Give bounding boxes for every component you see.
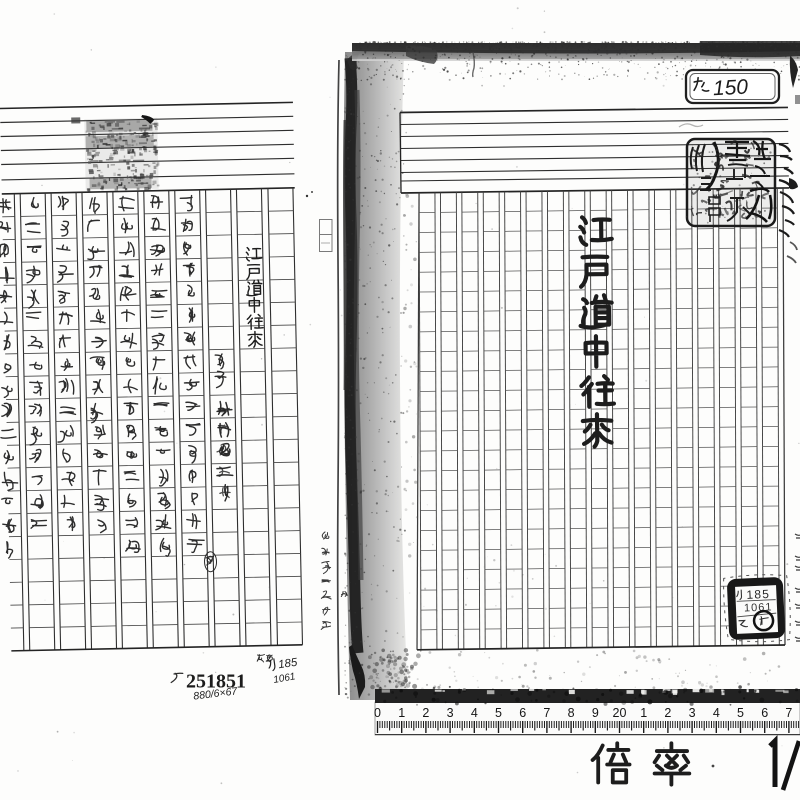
svg-text:5: 5 <box>495 706 502 720</box>
svg-text:4: 4 <box>713 706 720 720</box>
svg-text:4: 4 <box>471 706 478 720</box>
svg-text:6: 6 <box>761 706 768 720</box>
svg-text:7: 7 <box>785 706 792 720</box>
svg-text:1: 1 <box>640 706 647 720</box>
svg-text:5: 5 <box>737 706 744 720</box>
svg-text:6: 6 <box>519 706 526 720</box>
svg-text:150: 150 <box>712 75 749 100</box>
svg-text:8: 8 <box>568 706 575 720</box>
svg-text:2: 2 <box>422 706 429 720</box>
svg-text:9: 9 <box>592 706 599 720</box>
svg-text:3: 3 <box>689 706 696 720</box>
svg-text:3: 3 <box>447 706 454 720</box>
svg-text:7: 7 <box>543 706 550 720</box>
svg-text:20: 20 <box>613 706 627 720</box>
svg-text:0: 0 <box>374 706 381 720</box>
svg-text:2: 2 <box>664 706 671 720</box>
svg-text:1: 1 <box>398 706 405 720</box>
